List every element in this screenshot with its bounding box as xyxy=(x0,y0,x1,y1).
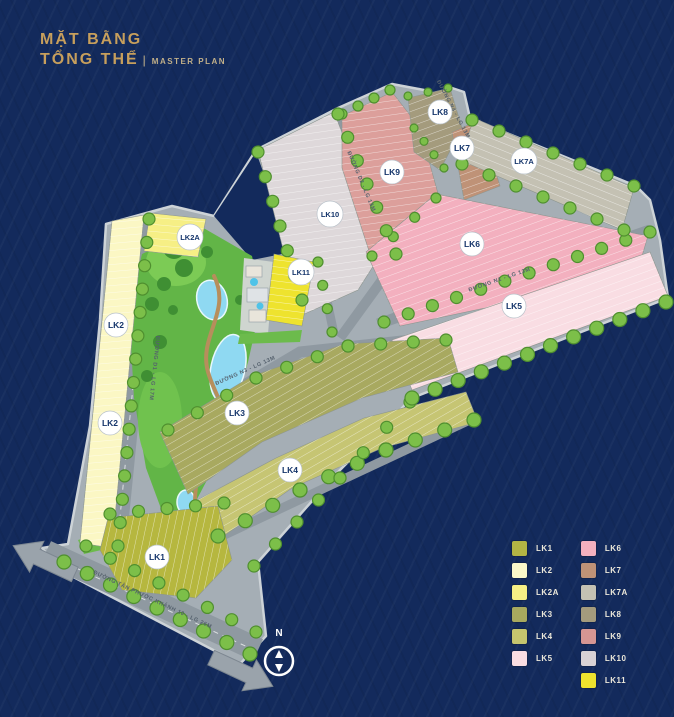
tree-icon xyxy=(424,88,432,96)
tree-icon xyxy=(80,540,92,552)
tree-icon xyxy=(291,516,303,528)
tree-icon xyxy=(440,164,448,172)
svg-text:LK7A: LK7A xyxy=(514,157,534,166)
legend-item: LK2 xyxy=(512,563,559,578)
tree-icon xyxy=(318,280,328,290)
badge-lk2-lower: LK2 xyxy=(98,411,122,435)
tree-icon xyxy=(121,447,133,459)
tree-icon xyxy=(381,421,393,433)
tree-icon xyxy=(369,93,379,103)
compass-icon xyxy=(258,640,300,682)
tree-icon xyxy=(601,169,613,181)
legend-swatch-lk7a xyxy=(581,585,596,600)
tree-icon xyxy=(440,334,452,346)
tree-icon xyxy=(162,424,174,436)
compass-north-label: N xyxy=(258,628,300,639)
svg-text:LK10: LK10 xyxy=(321,210,339,219)
badge-lk11: LK11 xyxy=(288,259,314,285)
tree-icon xyxy=(483,169,495,181)
legend-item: LK2A xyxy=(512,585,559,600)
tree-icon xyxy=(405,391,419,405)
tree-icon xyxy=(430,151,438,159)
tree-icon xyxy=(296,294,308,306)
badge-lk4: LK4 xyxy=(278,458,302,482)
tree-icon xyxy=(218,497,230,509)
svg-text:LK2A: LK2A xyxy=(180,233,200,242)
tree-icon xyxy=(141,236,153,248)
tree-icon xyxy=(112,540,124,552)
tree-icon xyxy=(139,260,151,272)
tree-icon xyxy=(466,114,478,126)
tree-icon xyxy=(248,560,260,572)
tree-icon xyxy=(510,180,522,192)
tree-icon xyxy=(177,589,189,601)
legend-item: LK11 xyxy=(581,673,628,688)
tree-icon xyxy=(390,248,402,260)
badge-lk5: LK5 xyxy=(502,294,526,318)
tree-icon xyxy=(659,295,673,309)
badge-lk7a: LK7A xyxy=(511,148,537,174)
tree-icon xyxy=(266,498,280,512)
legend-swatch-lk10 xyxy=(581,651,596,666)
tree-icon xyxy=(129,565,141,577)
tree-icon xyxy=(426,300,438,312)
tree-icon xyxy=(270,538,282,550)
tree-icon xyxy=(591,213,603,225)
svg-text:LK4: LK4 xyxy=(282,465,298,475)
legend-swatch-lk6 xyxy=(581,541,596,556)
tree-icon xyxy=(57,555,71,569)
tree-icon xyxy=(311,351,323,363)
tree-icon xyxy=(410,124,418,132)
legend-item: LK8 xyxy=(581,607,628,622)
legend-item: LK4 xyxy=(512,629,559,644)
legend-item: LK9 xyxy=(581,629,628,644)
tree-icon xyxy=(521,347,535,361)
legend-item: LK10 xyxy=(581,651,628,666)
tree-icon xyxy=(402,308,414,320)
tree-icon xyxy=(136,283,148,295)
legend-item: LK6 xyxy=(581,541,628,556)
compass: N xyxy=(258,628,300,687)
tree-icon xyxy=(132,330,144,342)
tree-icon xyxy=(408,433,422,447)
tree-icon xyxy=(143,213,155,225)
svg-text:LK3: LK3 xyxy=(229,408,245,418)
legend-column-left: LK1 LK2 LK2A LK3 LK4 LK5 xyxy=(512,541,559,688)
tree-icon xyxy=(201,601,213,613)
tree-icon xyxy=(211,529,225,543)
tree-icon xyxy=(353,101,363,111)
tree-icon xyxy=(161,503,173,515)
svg-text:LK5: LK5 xyxy=(506,301,522,311)
tree-icon xyxy=(116,493,128,505)
tree-icon xyxy=(574,158,586,170)
legend-item: LK3 xyxy=(512,607,559,622)
tree-icon xyxy=(322,304,332,314)
tree-icon xyxy=(226,614,238,626)
legend-item: LK1 xyxy=(512,541,559,556)
tree-icon xyxy=(332,108,344,120)
tree-icon xyxy=(313,494,325,506)
tree-icon xyxy=(537,191,549,203)
tree-icon xyxy=(410,212,420,222)
clubhouse-building xyxy=(246,266,262,277)
tree-icon xyxy=(220,636,234,650)
legend-item: LK5 xyxy=(512,651,559,666)
tree-icon xyxy=(123,423,135,435)
legend-item: LK7 xyxy=(581,563,628,578)
tree-icon xyxy=(404,92,412,100)
tree-icon xyxy=(221,389,233,401)
badge-lk2a: LK2A xyxy=(177,224,203,250)
tree-icon xyxy=(119,470,131,482)
tree-icon xyxy=(267,195,279,207)
tree-icon xyxy=(243,647,257,661)
badge-lk3: LK3 xyxy=(225,401,249,425)
pool xyxy=(250,278,258,286)
pool-2 xyxy=(257,303,264,310)
legend-swatch-lk7 xyxy=(581,563,596,578)
legend-column-right: LK6 LK7 LK7A LK8 LK9 LK10 LK11 xyxy=(581,541,628,688)
tree-icon xyxy=(252,146,264,158)
tree-icon xyxy=(420,137,428,145)
tree-icon xyxy=(385,85,395,95)
tree-icon xyxy=(497,356,511,370)
tree-icon xyxy=(274,220,286,232)
tree-icon xyxy=(259,171,271,183)
svg-text:LK9: LK9 xyxy=(384,167,400,177)
badge-lk8: LK8 xyxy=(428,100,452,124)
badge-lk9: LK9 xyxy=(380,160,404,184)
tree-icon xyxy=(342,340,354,352)
svg-text:LK8: LK8 xyxy=(432,107,448,117)
tree-icon xyxy=(375,338,387,350)
tree-icon xyxy=(114,517,126,529)
tree-icon xyxy=(431,193,441,203)
tree-icon xyxy=(327,327,337,337)
tree-icon xyxy=(567,330,581,344)
tree-icon xyxy=(293,483,307,497)
tree-icon xyxy=(367,251,377,261)
tree-icon xyxy=(628,180,640,192)
legend-swatch-lk8 xyxy=(581,607,596,622)
legend-swatch-lk5 xyxy=(512,651,527,666)
tree-icon xyxy=(357,447,369,459)
svg-text:LK2: LK2 xyxy=(108,320,124,330)
legend-swatch-lk2a xyxy=(512,585,527,600)
tree-icon xyxy=(467,413,481,427)
tree-icon xyxy=(547,147,559,159)
tree-icon xyxy=(380,225,392,237)
clubhouse-building-2 xyxy=(247,288,268,302)
tree-icon xyxy=(451,374,465,388)
tree-icon xyxy=(133,505,145,517)
legend-swatch-lk11 xyxy=(581,673,596,688)
tree-icon xyxy=(644,226,656,238)
tree-icon xyxy=(128,377,140,389)
tree-icon xyxy=(104,552,116,564)
tree-icon xyxy=(191,407,203,419)
badge-lk2-upper: LK2 xyxy=(104,313,128,337)
svg-text:LK7: LK7 xyxy=(454,143,470,153)
tree-icon xyxy=(613,313,627,327)
svg-text:LK1: LK1 xyxy=(149,552,165,562)
legend-swatch-lk1 xyxy=(512,541,527,556)
tree-icon xyxy=(636,304,650,318)
tree-icon xyxy=(281,245,293,257)
masterplan-page: MẶT BẰNG TỔNG THỂ|MASTER PLAN xyxy=(0,0,674,717)
tree-icon xyxy=(428,382,442,396)
tree-icon xyxy=(334,472,346,484)
tree-icon xyxy=(474,365,488,379)
badge-lk10: LK10 xyxy=(317,201,343,227)
tree-icon xyxy=(407,336,419,348)
legend-swatch-lk4 xyxy=(512,629,527,644)
badge-lk7: LK7 xyxy=(450,136,474,160)
tree-icon xyxy=(153,577,165,589)
tree-icon xyxy=(572,251,584,263)
tree-icon xyxy=(520,136,532,148)
tree-icon xyxy=(125,400,137,412)
tree-icon xyxy=(104,508,116,520)
tree-icon xyxy=(438,423,452,437)
svg-text:LK6: LK6 xyxy=(464,239,480,249)
clubhouse-building-3 xyxy=(249,310,266,322)
svg-text:LK2: LK2 xyxy=(102,418,118,428)
tree-icon xyxy=(618,224,630,236)
tree-icon xyxy=(590,321,604,335)
svg-text:LK11: LK11 xyxy=(292,268,310,277)
tree-icon xyxy=(313,257,323,267)
tree-icon xyxy=(451,292,463,304)
tree-icon xyxy=(250,372,262,384)
tree-icon xyxy=(238,514,252,528)
tree-icon xyxy=(379,443,393,457)
tree-icon xyxy=(190,500,202,512)
legend-swatch-lk9 xyxy=(581,629,596,644)
tree-icon xyxy=(342,131,354,143)
tree-icon xyxy=(130,353,142,365)
legend: LK1 LK2 LK2A LK3 LK4 LK5 LK6 LK7 LK7A LK… xyxy=(512,541,628,688)
tree-icon xyxy=(544,339,558,353)
legend-swatch-lk3 xyxy=(512,607,527,622)
tree-icon xyxy=(378,316,390,328)
tree-icon xyxy=(547,259,559,271)
tree-icon xyxy=(596,242,608,254)
legend-item: LK7A xyxy=(581,585,628,600)
tree-icon xyxy=(281,361,293,373)
tree-icon xyxy=(134,306,146,318)
legend-swatch-lk2 xyxy=(512,563,527,578)
tree-icon xyxy=(493,125,505,137)
badge-lk1: LK1 xyxy=(145,545,169,569)
badge-lk6: LK6 xyxy=(460,232,484,256)
tree-icon xyxy=(564,202,576,214)
